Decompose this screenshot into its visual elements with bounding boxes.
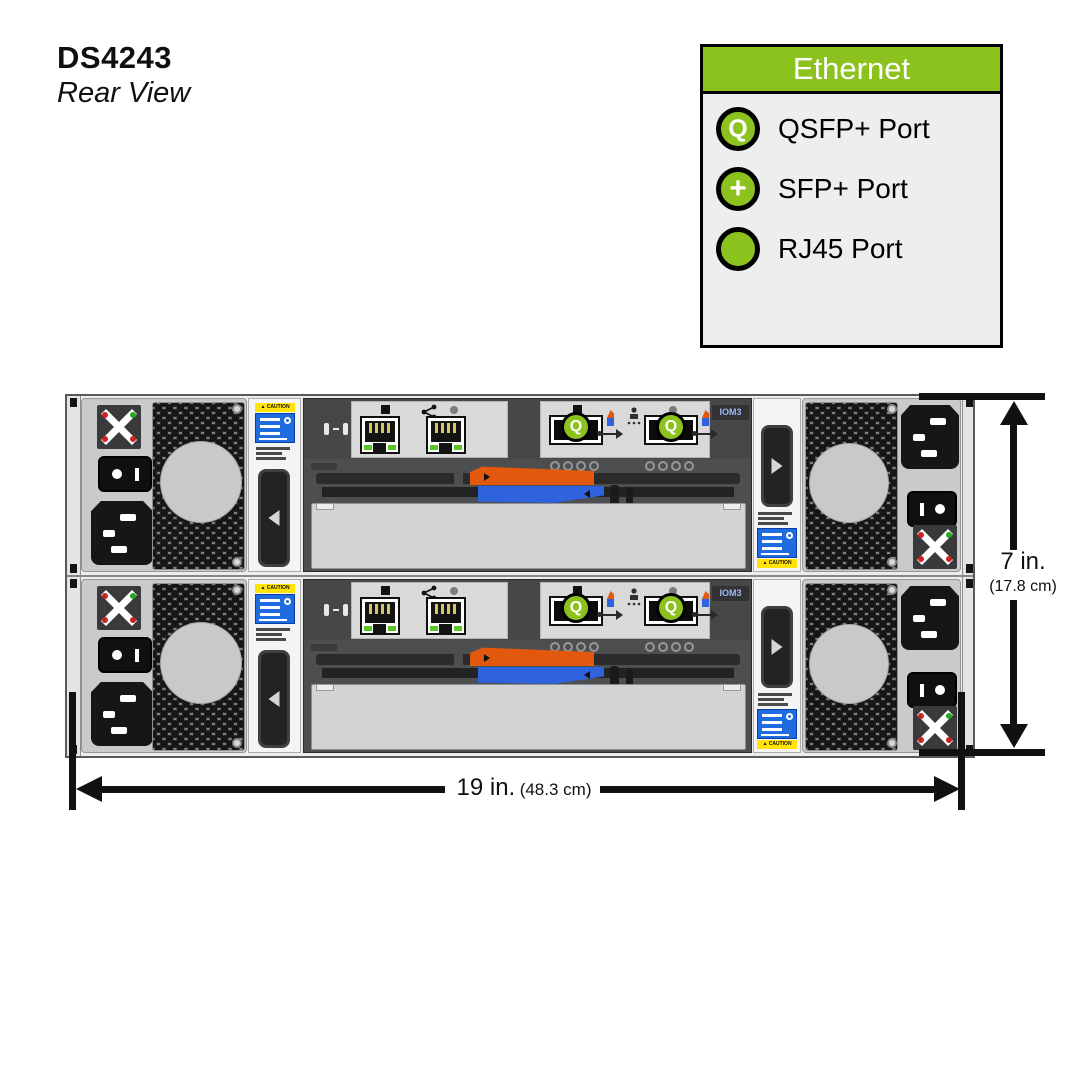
legend-item-label: SFP+ Port [778, 173, 908, 205]
height-dim-line [1010, 420, 1017, 550]
legend-title: Ethernet [703, 47, 1000, 94]
qsfp-marker: Q [656, 593, 686, 623]
diagram-canvas: DS4243 Rear View Ethernet Q QSFP+ Port +… [0, 0, 1080, 1080]
mount-notch [70, 398, 77, 407]
screw [232, 557, 242, 567]
fan-status-indicator [97, 405, 141, 449]
height-dim-label: 7 in. (17.8 cm) [966, 548, 1080, 596]
legend-item-rj45: RJ45 Port [716, 227, 903, 271]
fan-status-indicator [97, 586, 141, 630]
rj45-pins [369, 604, 391, 614]
status-led [918, 532, 924, 538]
latch-arrow-left-icon [269, 510, 280, 526]
height-dim-arrow-down [1000, 724, 1028, 748]
caution-banner: ▲ CAUTION [757, 740, 797, 749]
caution-strip-right: ▲ CAUTION [753, 579, 801, 753]
qsfp-port[interactable]: Q [549, 596, 603, 626]
caution-diagram [757, 528, 797, 558]
caution-fineprint [255, 625, 295, 643]
caution-banner: ▲ CAUTION [255, 584, 295, 593]
mount-notch [70, 579, 77, 588]
page-subtitle: Rear View [57, 77, 190, 110]
fan-hub [809, 624, 889, 704]
power-off-icon [112, 469, 122, 479]
screw [887, 404, 897, 414]
status-led [102, 617, 108, 623]
screw [887, 585, 897, 595]
power-supply-left [81, 398, 247, 572]
port-id-icon [324, 423, 348, 435]
power-switch[interactable] [907, 672, 957, 708]
iom-small-print [311, 644, 337, 651]
shelf-row: ▲ CAUTION [67, 396, 973, 577]
iom-module: Q Q IOM3 [303, 579, 752, 753]
caution-diagram [255, 594, 295, 624]
caution-text: ▲ CAUTION [762, 560, 791, 566]
iom-module: Q Q IOM3 [303, 398, 752, 572]
psu-latch-handle[interactable] [258, 650, 290, 748]
qsfp-marker: Q [656, 412, 686, 442]
link-led [388, 626, 396, 631]
status-led [946, 713, 952, 719]
ac-pin [120, 514, 136, 521]
link-led [454, 626, 462, 631]
psu-latch-handle[interactable] [761, 425, 793, 507]
ac-pin [930, 418, 946, 425]
psu-latch-handle[interactable] [761, 606, 793, 688]
qsfp-port[interactable]: Q [644, 596, 698, 626]
qsfp-port-icon: Q [716, 107, 760, 151]
width-dim-line [100, 786, 445, 793]
rack-ear-left [67, 396, 81, 575]
height-dim-tick-top [919, 393, 1045, 400]
caution-banner: ▲ CAUTION [255, 403, 295, 412]
power-off-icon [935, 504, 945, 514]
latch-arrow-right-icon [772, 639, 783, 655]
acp-icon [626, 587, 642, 607]
ac-pin [913, 615, 925, 622]
status-led [946, 737, 952, 743]
arrow-icon [696, 614, 712, 616]
square-port-icon [381, 586, 390, 595]
caution-fineprint [255, 444, 295, 462]
caution-strip-right: ▲ CAUTION [753, 398, 801, 572]
link-led [430, 626, 438, 631]
shelf-rear-illustration: ▲ CAUTION [65, 394, 975, 758]
caution-diagram [757, 709, 797, 739]
fan-status-indicator [913, 525, 957, 569]
arrow-icon [601, 433, 617, 435]
status-led [918, 713, 924, 719]
acp-icon [626, 406, 642, 426]
shelf-indicator-icon [702, 410, 709, 426]
qsfp-port[interactable]: Q [549, 415, 603, 445]
ac-pin [111, 727, 127, 734]
status-led [946, 532, 952, 538]
status-led [918, 737, 924, 743]
shelf-indicator-icon [607, 410, 614, 426]
shelf-row: ▲ CAUTION [67, 577, 973, 756]
legend-item-sfp: + SFP+ Port [716, 167, 908, 211]
caution-label: ▲ CAUTION [255, 584, 295, 643]
ac-power-inlet [901, 405, 959, 469]
caution-label: ▲ CAUTION [255, 403, 295, 462]
power-supply-left [81, 579, 247, 753]
rj45-pins [435, 423, 457, 433]
status-led [130, 412, 136, 418]
power-off-icon [935, 685, 945, 695]
width-dim-line [600, 786, 934, 793]
status-led [918, 556, 924, 562]
height-dim-tick-bottom [919, 749, 1045, 756]
ac-pin [913, 434, 925, 441]
caution-strip-left: ▲ CAUTION [248, 398, 301, 572]
rj45-port[interactable] [360, 597, 400, 635]
width-dim-arrow-right [934, 776, 960, 802]
status-led [130, 593, 136, 599]
rj45-pins [369, 423, 391, 433]
status-led [946, 556, 952, 562]
ac-power-inlet [901, 586, 959, 650]
link-led [364, 445, 372, 450]
lever-arrow-icon [484, 654, 490, 662]
screw [887, 738, 897, 748]
caution-diagram [255, 413, 295, 443]
circle-port-icon [450, 587, 458, 595]
caution-text: ▲ CAUTION [260, 404, 289, 410]
caution-strip-left: ▲ CAUTION [248, 579, 301, 753]
caution-text: ▲ CAUTION [762, 741, 791, 747]
screw [887, 557, 897, 567]
power-switch[interactable] [907, 491, 957, 527]
status-led [102, 593, 108, 599]
power-on-icon [920, 503, 924, 516]
blank-plate [311, 684, 746, 750]
rj45-pins [435, 604, 457, 614]
caution-label: ▲ CAUTION [757, 509, 797, 568]
fan-status-indicator [913, 706, 957, 750]
sas-port-panel: Q Q [540, 401, 710, 458]
power-off-icon [112, 650, 122, 660]
caution-text: ▲ CAUTION [260, 585, 289, 591]
ac-pin [921, 631, 937, 638]
power-supply-right [802, 579, 961, 753]
management-port-panel [351, 401, 508, 458]
iom-badge: IOM3 [712, 586, 749, 601]
legend-item-label: QSFP+ Port [778, 113, 930, 145]
screw [232, 738, 242, 748]
rj45-port[interactable] [426, 597, 466, 635]
shelf-indicator-icon [607, 591, 614, 607]
fan-hub [160, 622, 242, 704]
ac-pin [103, 530, 115, 537]
caution-fineprint [757, 509, 797, 527]
legend-item-label: RJ45 Port [778, 233, 903, 265]
sas-port-panel: Q Q [540, 582, 710, 639]
caution-label: ▲ CAUTION [757, 690, 797, 749]
fan-hub [809, 443, 889, 523]
legend-box: Ethernet Q QSFP+ Port + SFP+ Port RJ45 P… [700, 44, 1003, 348]
link-led [364, 626, 372, 631]
caution-fineprint [757, 690, 797, 708]
page-title: DS4243 [57, 40, 172, 76]
link-led [388, 445, 396, 450]
sfp-port-icon: + [716, 167, 760, 211]
lever-arrow-icon [584, 671, 590, 679]
qsfp-marker: Q [561, 593, 591, 623]
arrow-icon [601, 614, 617, 616]
lever-arrow-icon [484, 473, 490, 481]
latch-arrow-left-icon [269, 691, 280, 707]
width-dim-arrow-left [76, 776, 102, 802]
power-on-icon [135, 649, 139, 662]
status-led [130, 617, 136, 623]
link-led [430, 445, 438, 450]
screw [232, 585, 242, 595]
power-on-icon [135, 468, 139, 481]
qsfp-port[interactable]: Q [644, 415, 698, 445]
ac-power-inlet [91, 682, 153, 746]
cam-lever-blue[interactable] [478, 667, 604, 684]
circle-port-icon [450, 406, 458, 414]
power-on-icon [920, 684, 924, 697]
psu-latch-handle[interactable] [258, 469, 290, 567]
width-dim-label: 19 in. (48.3 cm) [445, 774, 603, 802]
lever-arrow-icon [584, 490, 590, 498]
iom-small-print [311, 463, 337, 470]
legend-item-qsfp: Q QSFP+ Port [716, 107, 930, 151]
ac-pin [921, 450, 937, 457]
shelf-indicator-icon [702, 591, 709, 607]
ac-power-inlet [91, 501, 153, 565]
qsfp-marker: Q [561, 412, 591, 442]
height-dim-line [1010, 600, 1017, 730]
link-led [454, 445, 462, 450]
iom-badge: IOM3 [712, 405, 749, 420]
arrow-icon [696, 433, 712, 435]
power-switch[interactable] [98, 637, 152, 673]
square-port-icon [381, 405, 390, 414]
management-port-panel [351, 582, 508, 639]
fan-hub [160, 441, 242, 523]
status-led [102, 436, 108, 442]
status-led [130, 436, 136, 442]
caution-banner: ▲ CAUTION [757, 559, 797, 568]
power-supply-right [802, 398, 961, 572]
status-led [102, 412, 108, 418]
ac-pin [930, 599, 946, 606]
mount-notch [70, 564, 77, 573]
screw [232, 404, 242, 414]
ac-pin [103, 711, 115, 718]
latch-arrow-right-icon [772, 458, 783, 474]
port-id-icon [324, 604, 348, 616]
width-dim-extension-left [69, 692, 76, 810]
rj45-port[interactable] [426, 416, 466, 454]
rj45-port-icon [716, 227, 760, 271]
ac-pin [111, 546, 127, 553]
blank-plate [311, 503, 746, 569]
ac-pin [120, 695, 136, 702]
rj45-port[interactable] [360, 416, 400, 454]
power-switch[interactable] [98, 456, 152, 492]
cam-lever-blue[interactable] [478, 486, 604, 503]
